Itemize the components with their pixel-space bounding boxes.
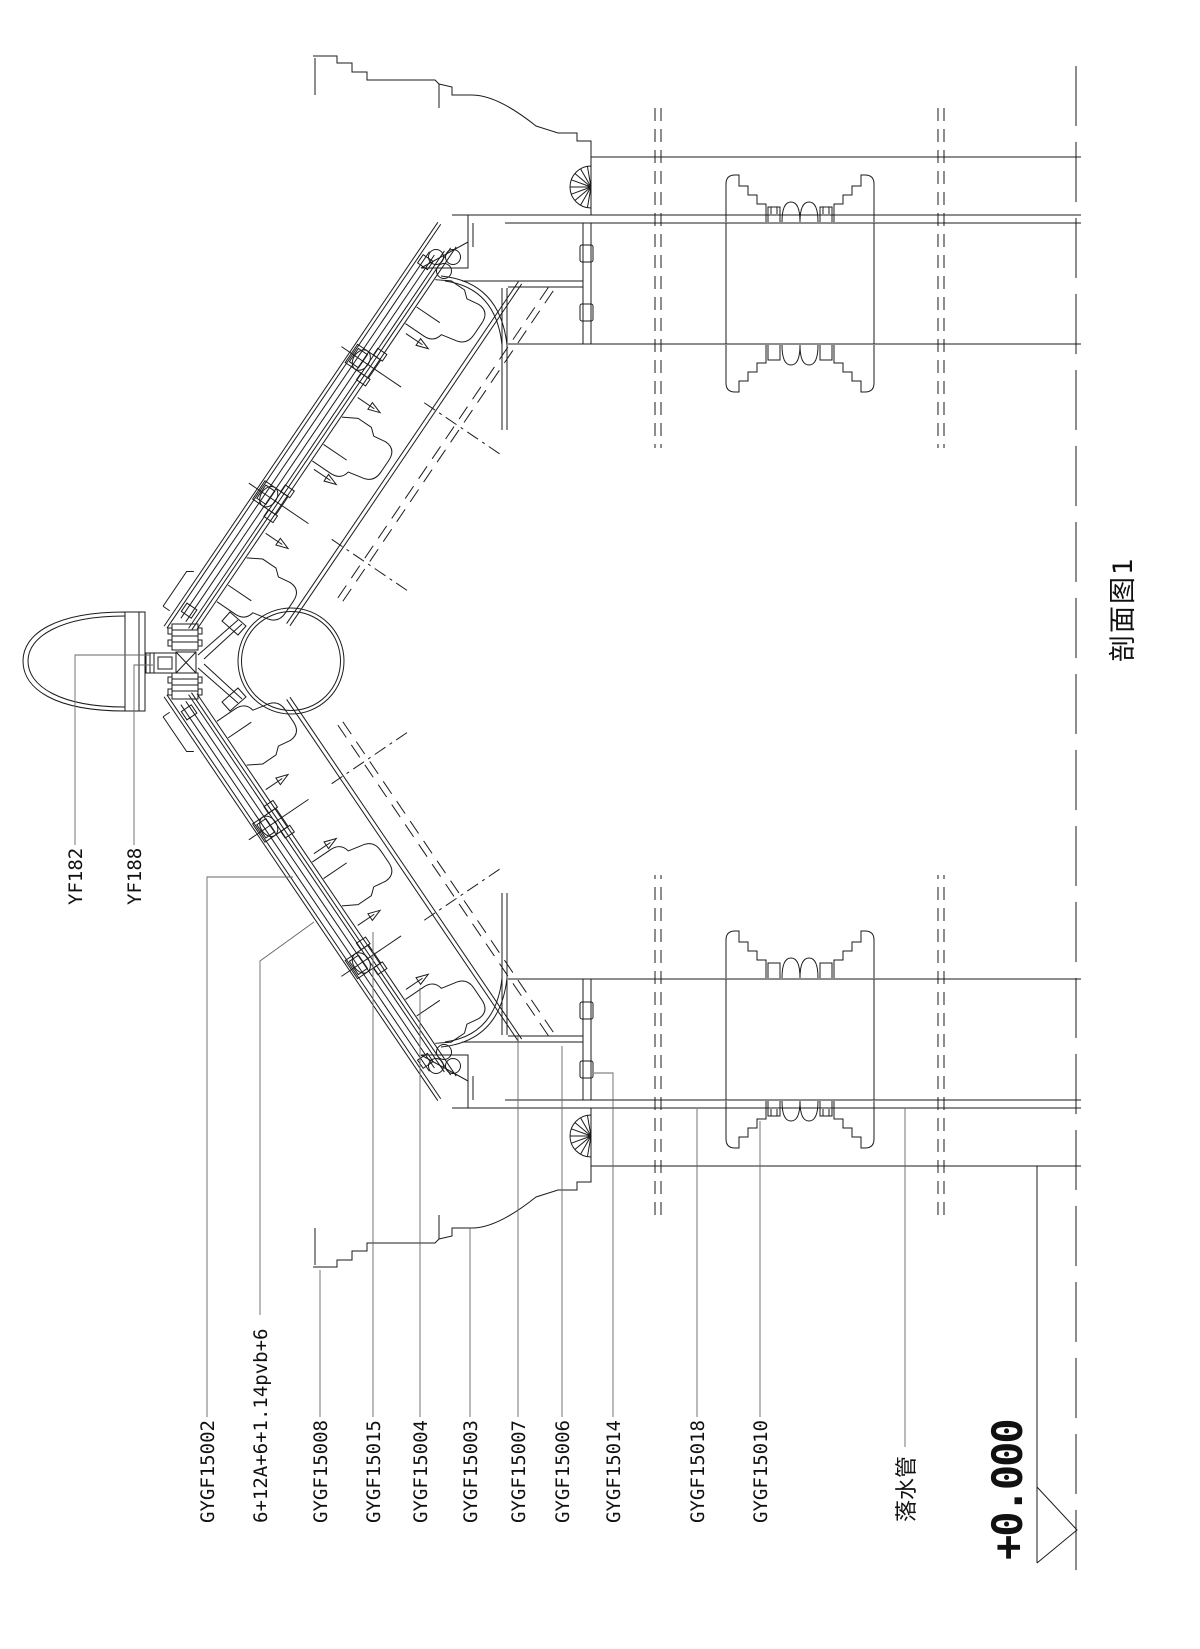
part-label-glass-spec: 6+12A+6+1.14pvb+6 xyxy=(250,922,314,1523)
ridge-v-bracket xyxy=(198,612,246,711)
part-label-text: GYGF15003 xyxy=(460,1420,482,1523)
downpipe-label-text: 落水管 xyxy=(895,1456,920,1522)
elevation-marker xyxy=(1037,1166,1077,1563)
bottom-floor-band xyxy=(313,875,1162,1267)
part-label-text: GYGF15002 xyxy=(197,1420,219,1523)
ridge-bolt-assembly xyxy=(146,652,196,673)
cad-section-drawing-page: YF182 YF188 GYGF15002 6+12A+6+1.14pvb+6 … xyxy=(0,0,1200,1649)
top-floor-band xyxy=(313,56,1162,448)
part-label-gygf15014: GYGF15014 xyxy=(594,1073,625,1523)
part-label-gygf15002: GYGF15002 xyxy=(197,877,293,1523)
ridge-bullet-cap xyxy=(23,612,125,711)
ridge-apex-assembly xyxy=(23,608,344,714)
ridge-mount-plate xyxy=(125,612,145,711)
part-label-text: GYGF15015 xyxy=(363,1420,385,1523)
leader-line xyxy=(260,922,314,1315)
ridge-label-text: YF188 xyxy=(124,848,146,905)
part-label-text: GYGF15018 xyxy=(687,1420,709,1523)
leader-line xyxy=(594,1073,613,1417)
section-drawing-canvas: YF182 YF188 GYGF15002 6+12A+6+1.14pvb+6 … xyxy=(0,0,1200,1649)
part-label-gygf15010: GYGF15010 xyxy=(750,1121,772,1523)
part-label-text: GYGF15006 xyxy=(552,1420,574,1523)
part-label-gygf15003: GYGF15003 xyxy=(460,1228,482,1523)
part-label-text: GYGF15008 xyxy=(310,1420,332,1523)
part-label-gygf15018: GYGF15018 xyxy=(687,1109,709,1523)
part-label-text: GYGF15010 xyxy=(750,1420,772,1523)
part-label-text: GYGF15007 xyxy=(508,1420,530,1523)
elevation-triangle-icon xyxy=(1037,1487,1077,1563)
part-label-text: GYGF15014 xyxy=(603,1420,625,1523)
part-label-text: 6+12A+6+1.14pvb+6 xyxy=(250,1329,272,1523)
downpipe-annotation: 落水管 xyxy=(895,1108,920,1522)
elevation-value-text: +0.000 xyxy=(983,1420,1032,1560)
drawing-title: 剖面图1 xyxy=(1108,556,1139,662)
upper-glazing-wing xyxy=(154,207,594,728)
part-label-gygf15006: GYGF15006 xyxy=(552,1046,574,1523)
part-label-gygf15008: GYGF15008 xyxy=(310,1270,332,1523)
lower-glazing-wing xyxy=(154,595,594,1116)
part-label-text: GYGF15004 xyxy=(410,1420,432,1523)
ridge-label-text: YF182 xyxy=(65,848,87,905)
part-label-gygf15015: GYGF15015 xyxy=(363,932,385,1523)
leader-line xyxy=(134,665,153,845)
